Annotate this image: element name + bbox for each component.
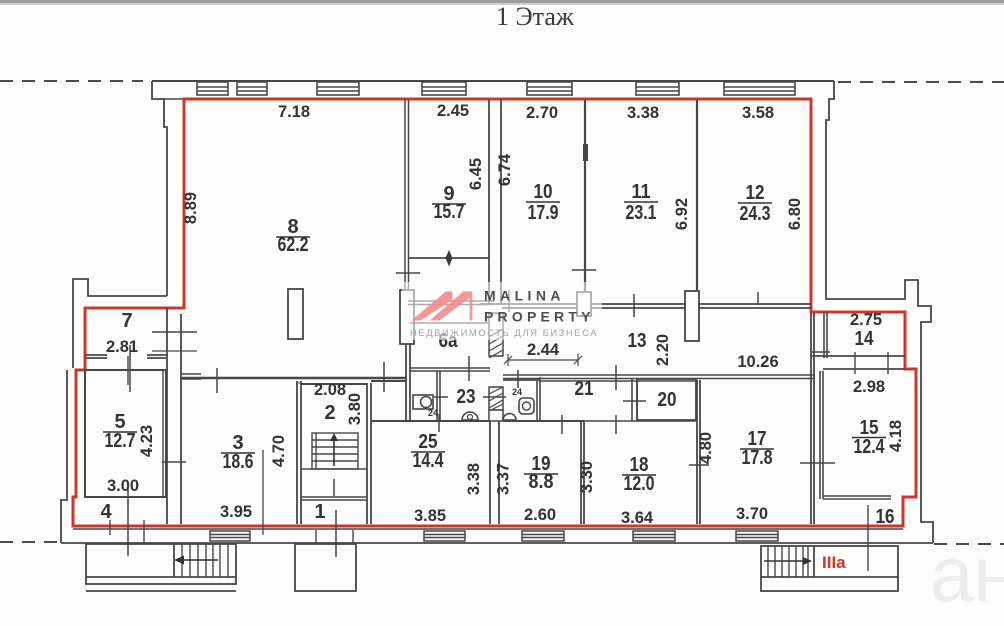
svg-text:15.7: 15.7 [434, 201, 465, 223]
svg-text:MALINA: MALINA [484, 288, 565, 304]
svg-text:17.8: 17.8 [742, 447, 773, 469]
svg-text:2.70: 2.70 [526, 104, 558, 122]
svg-text:24: 24 [428, 408, 438, 418]
svg-text:1 Этаж: 1 Этаж [496, 2, 575, 31]
svg-text:4.18: 4.18 [887, 420, 905, 452]
svg-text:4.70: 4.70 [270, 435, 288, 467]
svg-text:8.89: 8.89 [182, 192, 200, 224]
svg-text:2.45: 2.45 [437, 102, 469, 120]
svg-text:62.2: 62.2 [278, 234, 309, 256]
svg-text:14.4: 14.4 [413, 450, 445, 472]
svg-text:23.1: 23.1 [626, 202, 657, 224]
svg-text:18.6: 18.6 [223, 451, 254, 473]
svg-text:6.45: 6.45 [467, 158, 485, 190]
svg-text:3.80: 3.80 [346, 393, 364, 425]
svg-text:3.95: 3.95 [220, 503, 252, 521]
svg-text:2: 2 [324, 402, 335, 424]
svg-text:3.00: 3.00 [107, 477, 139, 495]
svg-text:3.30: 3.30 [578, 461, 596, 493]
svg-text:12.0: 12.0 [624, 473, 655, 495]
svg-text:НЕДВИЖИМОСТЬ ДЛЯ БИЗНЕСА: НЕДВИЖИМОСТЬ ДЛЯ БИЗНЕСА [410, 328, 598, 339]
svg-text:21: 21 [575, 378, 594, 400]
svg-text:11: 11 [632, 181, 651, 203]
svg-text:24: 24 [512, 387, 522, 397]
svg-text:24.3: 24.3 [740, 203, 771, 225]
svg-text:ан: ан [930, 530, 1004, 618]
svg-text:4.80: 4.80 [697, 432, 715, 464]
svg-text:6.80: 6.80 [786, 198, 804, 230]
svg-text:3.38: 3.38 [627, 104, 659, 122]
svg-text:4.23: 4.23 [138, 425, 156, 457]
svg-text:2.60: 2.60 [524, 506, 556, 524]
svg-text:IIIa: IIIa [822, 553, 846, 572]
svg-text:8.8: 8.8 [529, 471, 554, 493]
svg-text:3.37: 3.37 [495, 463, 513, 495]
svg-text:10.26: 10.26 [737, 353, 778, 371]
svg-text:2.08: 2.08 [314, 381, 346, 399]
svg-text:2.75: 2.75 [850, 311, 882, 329]
svg-text:10: 10 [534, 181, 553, 203]
svg-text:6.74: 6.74 [496, 153, 514, 186]
svg-text:7: 7 [121, 310, 132, 332]
svg-text:17.9: 17.9 [528, 202, 559, 224]
svg-text:3.70: 3.70 [736, 505, 768, 523]
svg-text:12: 12 [746, 182, 765, 204]
svg-text:20: 20 [658, 389, 677, 411]
svg-text:3.38: 3.38 [465, 463, 483, 495]
svg-text:2.20: 2.20 [654, 334, 672, 366]
svg-text:12.7: 12.7 [105, 430, 136, 452]
svg-text:3.58: 3.58 [742, 104, 774, 122]
svg-text:14: 14 [855, 328, 875, 350]
svg-text:PROPERTY: PROPERTY [484, 309, 595, 325]
svg-text:23: 23 [457, 386, 476, 408]
svg-text:1: 1 [314, 501, 325, 523]
svg-text:6.92: 6.92 [673, 198, 691, 230]
svg-text:4: 4 [100, 501, 112, 523]
svg-text:12.4: 12.4 [854, 436, 886, 458]
svg-text:2.44: 2.44 [527, 341, 560, 359]
svg-text:13: 13 [628, 330, 647, 352]
svg-text:2.98: 2.98 [853, 378, 885, 396]
svg-text:7.18: 7.18 [278, 103, 310, 121]
svg-text:3.85: 3.85 [414, 507, 446, 525]
svg-text:3.64: 3.64 [621, 509, 654, 527]
svg-text:2.81: 2.81 [106, 338, 138, 356]
svg-text:16: 16 [876, 506, 895, 528]
